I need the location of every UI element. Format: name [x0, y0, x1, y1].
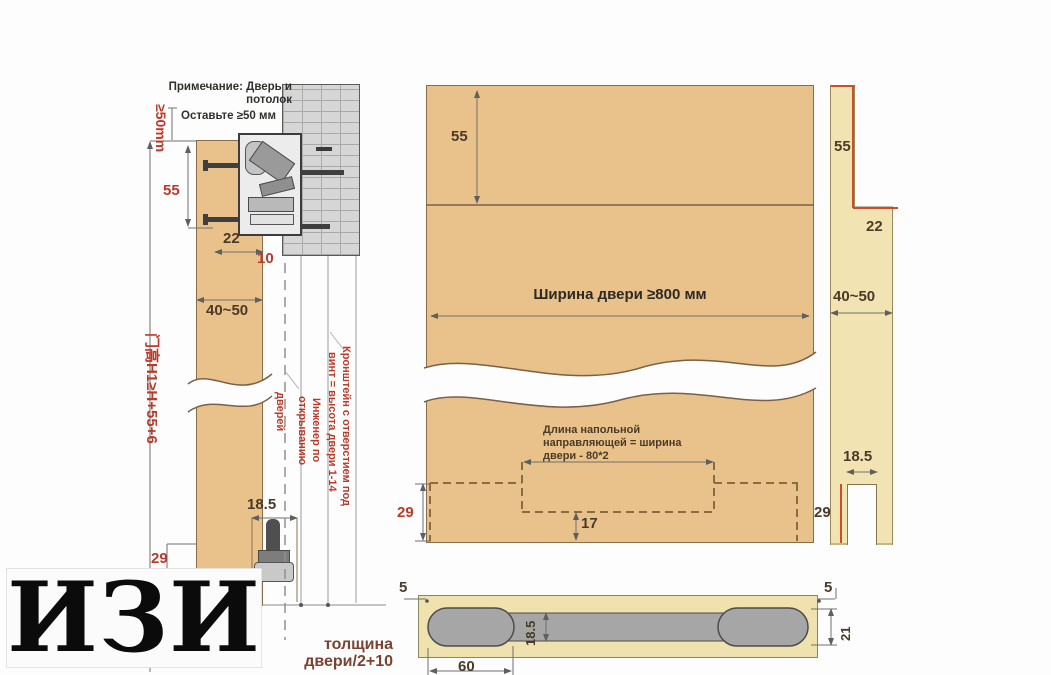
- dim-40-50-right: 40~50: [833, 289, 875, 306]
- door-front-panel: [426, 85, 814, 543]
- dim-5-bottom-left: 5: [399, 580, 407, 597]
- ref-dot-1: [299, 603, 303, 607]
- door-width-label: Ширина двери ≥800 мм: [426, 287, 814, 304]
- bracket-note-line1: Кронштейн с отверстием под: [340, 346, 352, 521]
- dim-17-middle: 17: [581, 516, 598, 533]
- dim-29-left: 29: [151, 551, 168, 568]
- screw-right-top: [300, 170, 344, 175]
- engineer-note-line3: дверей: [274, 392, 286, 460]
- dim-22-left: 22: [223, 231, 240, 248]
- ref-dot-2: [326, 603, 330, 607]
- screw-right-bottom: [300, 224, 330, 229]
- dim-5-bottom-right: 5: [824, 580, 832, 597]
- dim-29-middle: 29: [397, 505, 414, 522]
- floor-guide-pin: [266, 519, 280, 553]
- bracket-note-line2: винт = высота двери 1-14: [326, 352, 338, 504]
- screw-left-bottom-head: [203, 214, 208, 225]
- dim-40-50-left: 40~50: [206, 303, 248, 320]
- guide-length-label-line2: направляющей = ширина: [543, 437, 682, 449]
- guide-length-label-line1: Длина напольной: [543, 424, 640, 436]
- guide-length-label-line3: двери - 80*2: [543, 450, 609, 462]
- screw-left-top: [203, 163, 239, 168]
- installation-diagram: Примечание: Дверь и потолок Оставьте ≥50…: [0, 0, 1051, 675]
- dim-21-bottom: 21: [839, 605, 853, 641]
- leave-50mm-label: Оставьте ≥50 мм: [181, 110, 276, 123]
- engineer-note-line2: открыванию: [296, 396, 308, 516]
- clamp-block: [248, 197, 294, 212]
- ceiling-note-line2: потолок: [153, 94, 292, 107]
- right-strip-notch: [847, 484, 877, 545]
- dim-55-left: 55: [163, 183, 180, 200]
- watermark: ИЗИ: [6, 568, 262, 668]
- dim-18-5-right: 18.5: [843, 449, 872, 466]
- dim-29-right: 29: [814, 505, 831, 522]
- screw-left-bottom: [203, 217, 239, 222]
- ceiling-note-line1: Примечание: Дверь и: [153, 81, 292, 94]
- clamp-plate: [250, 214, 294, 225]
- wall-anchor-mark: [316, 147, 332, 151]
- dim-18-5-bottom: 18.5: [524, 604, 538, 646]
- door-height-formula: 门高H1≥H+55+6: [143, 333, 160, 533]
- dim-55-right: 55: [834, 139, 851, 156]
- dim-18-5-left: 18.5: [247, 497, 276, 514]
- engineer-note-line1: Инженер по: [310, 398, 322, 508]
- dim-60-bottom: 60: [458, 659, 475, 675]
- gap-50mm-label: ≥50mm: [153, 104, 168, 190]
- floor-guide-strip: [418, 595, 818, 658]
- dim-55-middle: 55: [451, 129, 468, 146]
- screw-left-top-head: [203, 160, 208, 171]
- dim-22-right: 22: [866, 219, 883, 236]
- dim-10-left: 10: [257, 251, 274, 268]
